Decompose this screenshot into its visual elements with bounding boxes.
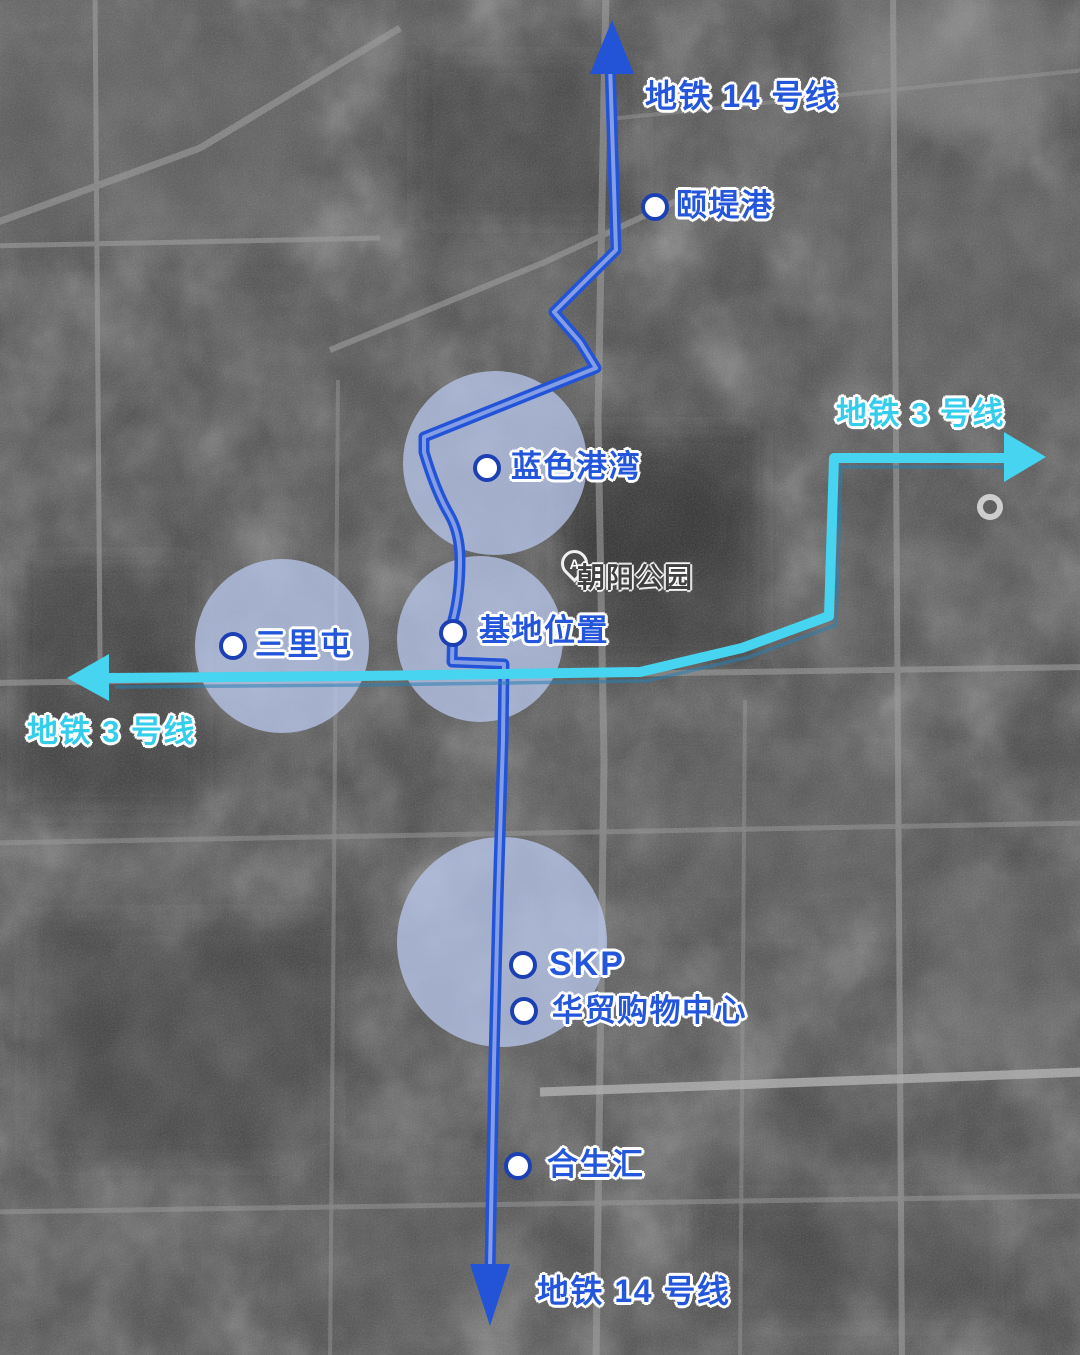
station-label-base: 基地位置: [479, 615, 609, 646]
station-label-skp: SKP: [549, 947, 625, 981]
station-label-indigo: 颐堤港: [676, 190, 774, 221]
station-dot-hopson: [504, 1152, 532, 1180]
line14-label-bottom: 地铁 14 号线: [537, 1275, 730, 1307]
line14-label-top: 地铁 14 号线: [645, 80, 838, 112]
station-dot-huamao: [510, 997, 538, 1025]
park-label: 朝阳公园: [577, 564, 693, 592]
station-label-hopson: 合生汇: [547, 1149, 645, 1180]
station-label-sanlitun: 三里屯: [255, 629, 353, 660]
station-dot-base: [439, 619, 467, 647]
station-dot-solana: [473, 454, 501, 482]
station-dot-skp: [509, 951, 537, 979]
station-dot-sanlitun: [219, 632, 247, 660]
line3-label-right: 地铁 3 号线: [836, 398, 1005, 429]
line14-arrow-down: [470, 1264, 510, 1326]
metro-map: A 朝阳公园 颐堤港 蓝色港湾 基地位置 三里屯 SKP 华贸购物中心 合生汇 …: [0, 0, 1080, 1355]
line3-arrow-right: [1004, 432, 1046, 482]
line3-arrow-left: [67, 654, 109, 701]
line14-arrow-up: [590, 20, 634, 74]
station-dot-indigo: [641, 193, 669, 221]
line3-label-left: 地铁 3 号线: [27, 716, 196, 747]
station-label-huamao: 华贸购物中心: [552, 995, 747, 1026]
metro-lines-overlay: [0, 0, 1080, 1355]
station-label-solana: 蓝色港湾: [511, 451, 641, 482]
